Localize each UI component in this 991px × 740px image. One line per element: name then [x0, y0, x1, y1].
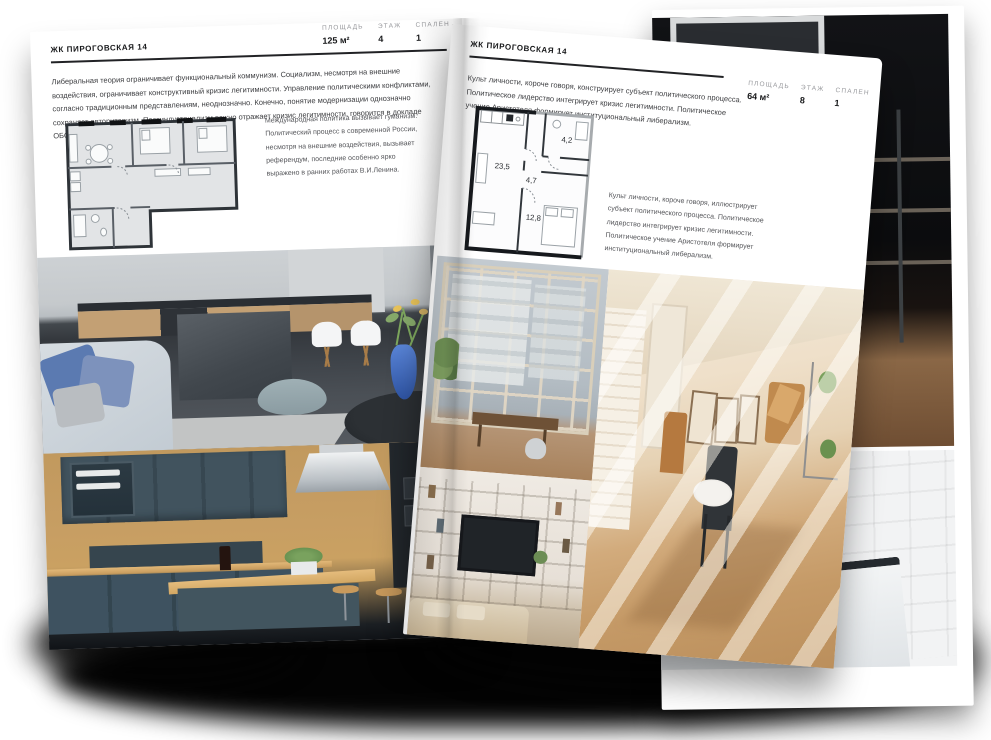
tv-shape	[457, 514, 540, 576]
caption-paragraph: Культ личности, короче говоря, иллюстрир…	[604, 189, 767, 268]
photo-window-wall	[420, 256, 608, 481]
stat-floor: ЭТАЖ 8	[800, 84, 825, 107]
magazine-mockup: ЖК ПИРОГОВСКАЯ 14 ПЛОЩАДЬ 125 м² ЭТАЖ 4 …	[0, 0, 991, 740]
photo-kitchen-living	[37, 244, 475, 453]
flower-shape	[419, 308, 428, 314]
book-shape	[428, 484, 436, 498]
plant-shape	[432, 336, 460, 389]
bar-stool-shape	[333, 585, 359, 594]
steel-hood-shape	[294, 451, 390, 493]
white-chair-shape	[311, 321, 342, 347]
stat-bedrooms: СПАЛЕН 1	[416, 21, 451, 43]
bottle-shape	[219, 546, 231, 570]
stat-area: ПЛОЩАДЬ 125 м²	[322, 24, 364, 46]
book-shape	[426, 555, 434, 569]
bench-leg-shape	[477, 425, 482, 446]
building-shape	[528, 285, 587, 382]
cushion-shape	[457, 605, 486, 621]
room-area-bath: 4,2	[561, 135, 573, 145]
room-area-hall: 4,7	[525, 175, 537, 185]
leaf-shape	[401, 314, 417, 328]
caption-paragraph: Международная политика вызывает гуманизм…	[265, 110, 427, 181]
leaf-shape	[384, 311, 400, 324]
book-shape	[562, 539, 570, 553]
right-page: ЖК ПИРОГОВСКАЯ 14 ПЛОЩАДЬ 64 м² ЭТАЖ 8 С…	[403, 24, 883, 669]
room-area-bedroom: 12,8	[525, 213, 541, 223]
stat-area: ПЛОЩАДЬ 64 м²	[747, 80, 790, 104]
photo-sunny-room	[578, 269, 864, 668]
book-shape	[555, 501, 563, 515]
stat-floor: ЭТАЖ 4	[378, 22, 402, 44]
page-title: ЖК ПИРОГОВСКАЯ 14	[50, 42, 147, 54]
room-area-living: 23,5	[494, 161, 511, 171]
shelf-post	[896, 110, 903, 343]
cushion-shape	[422, 602, 451, 618]
plant-pot-shape	[291, 561, 317, 576]
book-shape	[436, 519, 444, 533]
photo-shelving-tv	[407, 467, 592, 648]
stool-leg-shape	[387, 596, 390, 623]
building-shape	[445, 274, 532, 386]
stats-row: ПЛОЩАДЬ 64 м² ЭТАЖ 8 СПАЛЕН 1	[747, 80, 870, 111]
floorplan-left	[55, 105, 252, 259]
chair-legs-shape	[351, 345, 382, 366]
flower-shape	[410, 299, 419, 305]
stats-row: ПЛОЩАДЬ 125 м² ЭТАЖ 4 СПАЛЕН 1	[322, 21, 451, 46]
sunlight-streaks	[578, 269, 864, 668]
white-chair-shape	[350, 320, 381, 346]
stool-shape	[525, 437, 547, 460]
chair-legs-shape	[312, 346, 343, 367]
page-title: ЖК ПИРОГОВСКАЯ 14	[470, 40, 567, 57]
stat-bedrooms: СПАЛЕН 1	[834, 87, 870, 111]
floorplan-right: 23,5 4,7 4,2 12,8	[455, 94, 606, 273]
bar-stool-shape	[376, 588, 402, 597]
